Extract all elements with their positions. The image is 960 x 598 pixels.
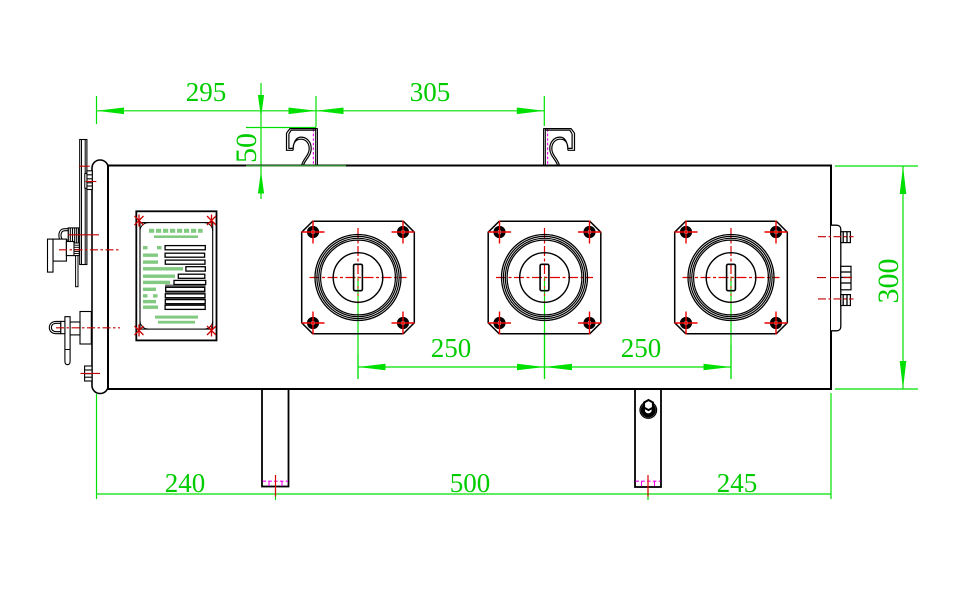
svg-text:300: 300 bbox=[872, 259, 905, 304]
svg-text:50: 50 bbox=[230, 133, 263, 163]
svg-text:250: 250 bbox=[431, 333, 472, 363]
svg-text:240: 240 bbox=[165, 468, 206, 498]
svg-text:245: 245 bbox=[717, 468, 758, 498]
svg-text:305: 305 bbox=[410, 77, 451, 107]
svg-text:500: 500 bbox=[450, 468, 491, 498]
svg-text:295: 295 bbox=[186, 77, 227, 107]
svg-text:250: 250 bbox=[621, 333, 662, 363]
